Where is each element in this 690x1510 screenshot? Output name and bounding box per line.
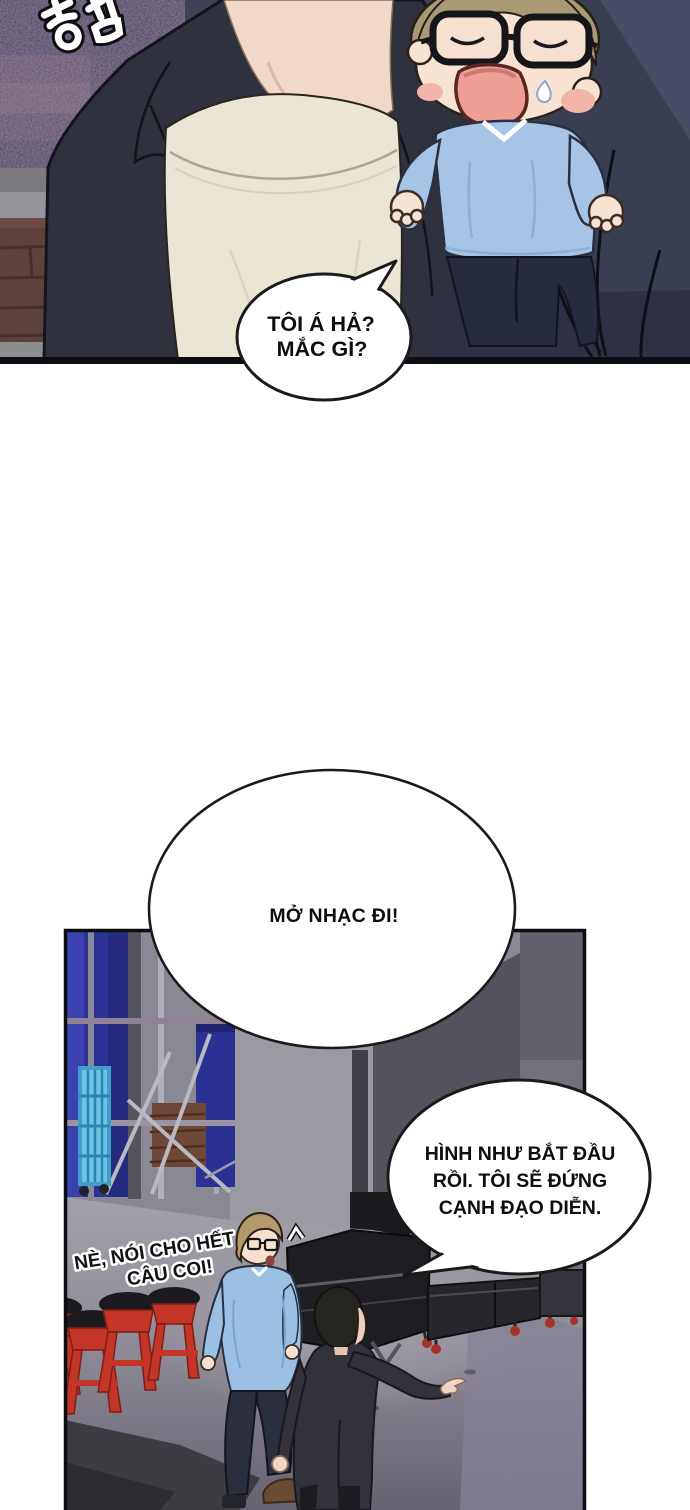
svg-text:MỞ NHẠC ĐI!: MỞ NHẠC ĐI!: [269, 903, 398, 927]
svg-text:HÌNH NHƯ BẮT ĐẦU: HÌNH NHƯ BẮT ĐẦU: [425, 1141, 616, 1165]
svg-text:MẮC GÌ?: MẮC GÌ?: [277, 336, 368, 361]
svg-text:CẠNH ĐẠO DIỄN.: CẠNH ĐẠO DIỄN.: [439, 1196, 602, 1219]
svg-text:RỒI. TÔI SẼ ĐỨNG: RỒI. TÔI SẼ ĐỨNG: [433, 1168, 607, 1192]
svg-text:TÔI Á HẢ?: TÔI Á HẢ?: [267, 311, 375, 336]
